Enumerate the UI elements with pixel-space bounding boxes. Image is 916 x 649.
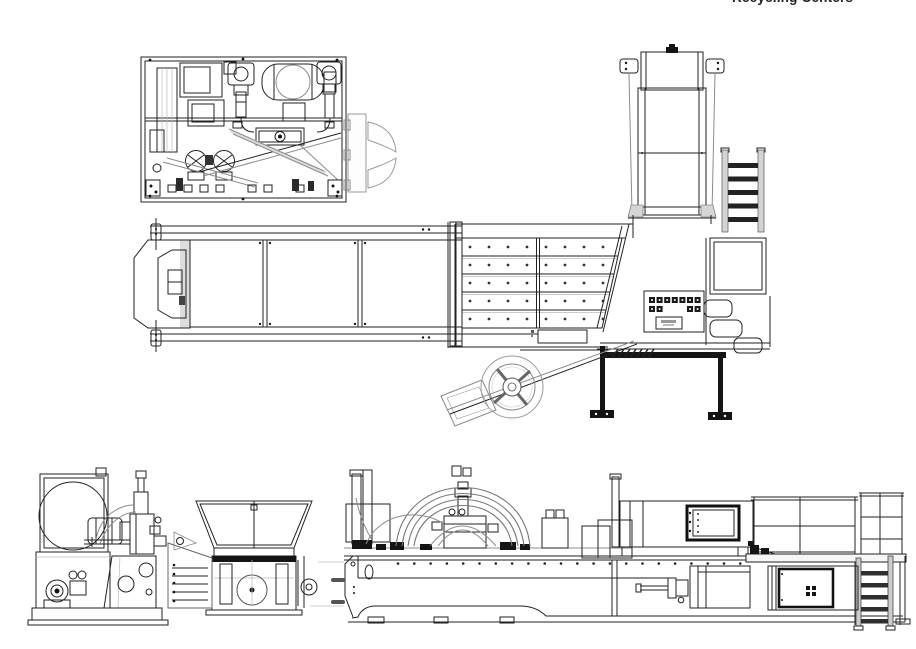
valve-manifold-plan xyxy=(256,128,304,145)
machine-drawing-svg xyxy=(0,0,916,649)
pump-motor-side xyxy=(84,471,166,554)
support-legs xyxy=(590,346,732,420)
control-panel-buttons[interactable] xyxy=(649,297,701,312)
press-ram-side xyxy=(612,560,750,616)
access-ladder-plan xyxy=(721,148,765,232)
shredder-hopper-side-view xyxy=(168,501,344,615)
conveyor-mount-brackets xyxy=(151,218,161,352)
side-bolt-row xyxy=(397,562,742,565)
bale-chamber-box xyxy=(768,566,858,610)
power-pack-side-view xyxy=(28,468,168,625)
baler-side-view xyxy=(331,466,910,630)
cabinet-door[interactable] xyxy=(687,506,739,540)
hydraulic-deck-side xyxy=(344,466,632,558)
hydraulic-fittings-plan xyxy=(704,300,762,353)
access-ladder-side xyxy=(854,556,895,630)
discharge-horns xyxy=(344,114,396,192)
conveyor-cross-members xyxy=(259,240,366,327)
electrical-cabinet-side xyxy=(620,501,800,562)
finned-drive-unit xyxy=(168,532,212,608)
control-panel xyxy=(644,291,704,332)
conveyor-tail-end xyxy=(134,240,190,328)
hopper-tower xyxy=(620,44,724,224)
deck-nameplate xyxy=(538,330,587,343)
lower-pump-side xyxy=(44,556,156,608)
technical-drawing-canvas: Recycling Centers xyxy=(0,0,916,649)
walkway-platform-plan xyxy=(710,238,766,294)
oil-cooler-block xyxy=(157,62,246,152)
baler-plan-view xyxy=(441,44,770,426)
slat-conveyor-deck xyxy=(462,224,629,332)
power-pack-plan-view xyxy=(141,57,396,202)
